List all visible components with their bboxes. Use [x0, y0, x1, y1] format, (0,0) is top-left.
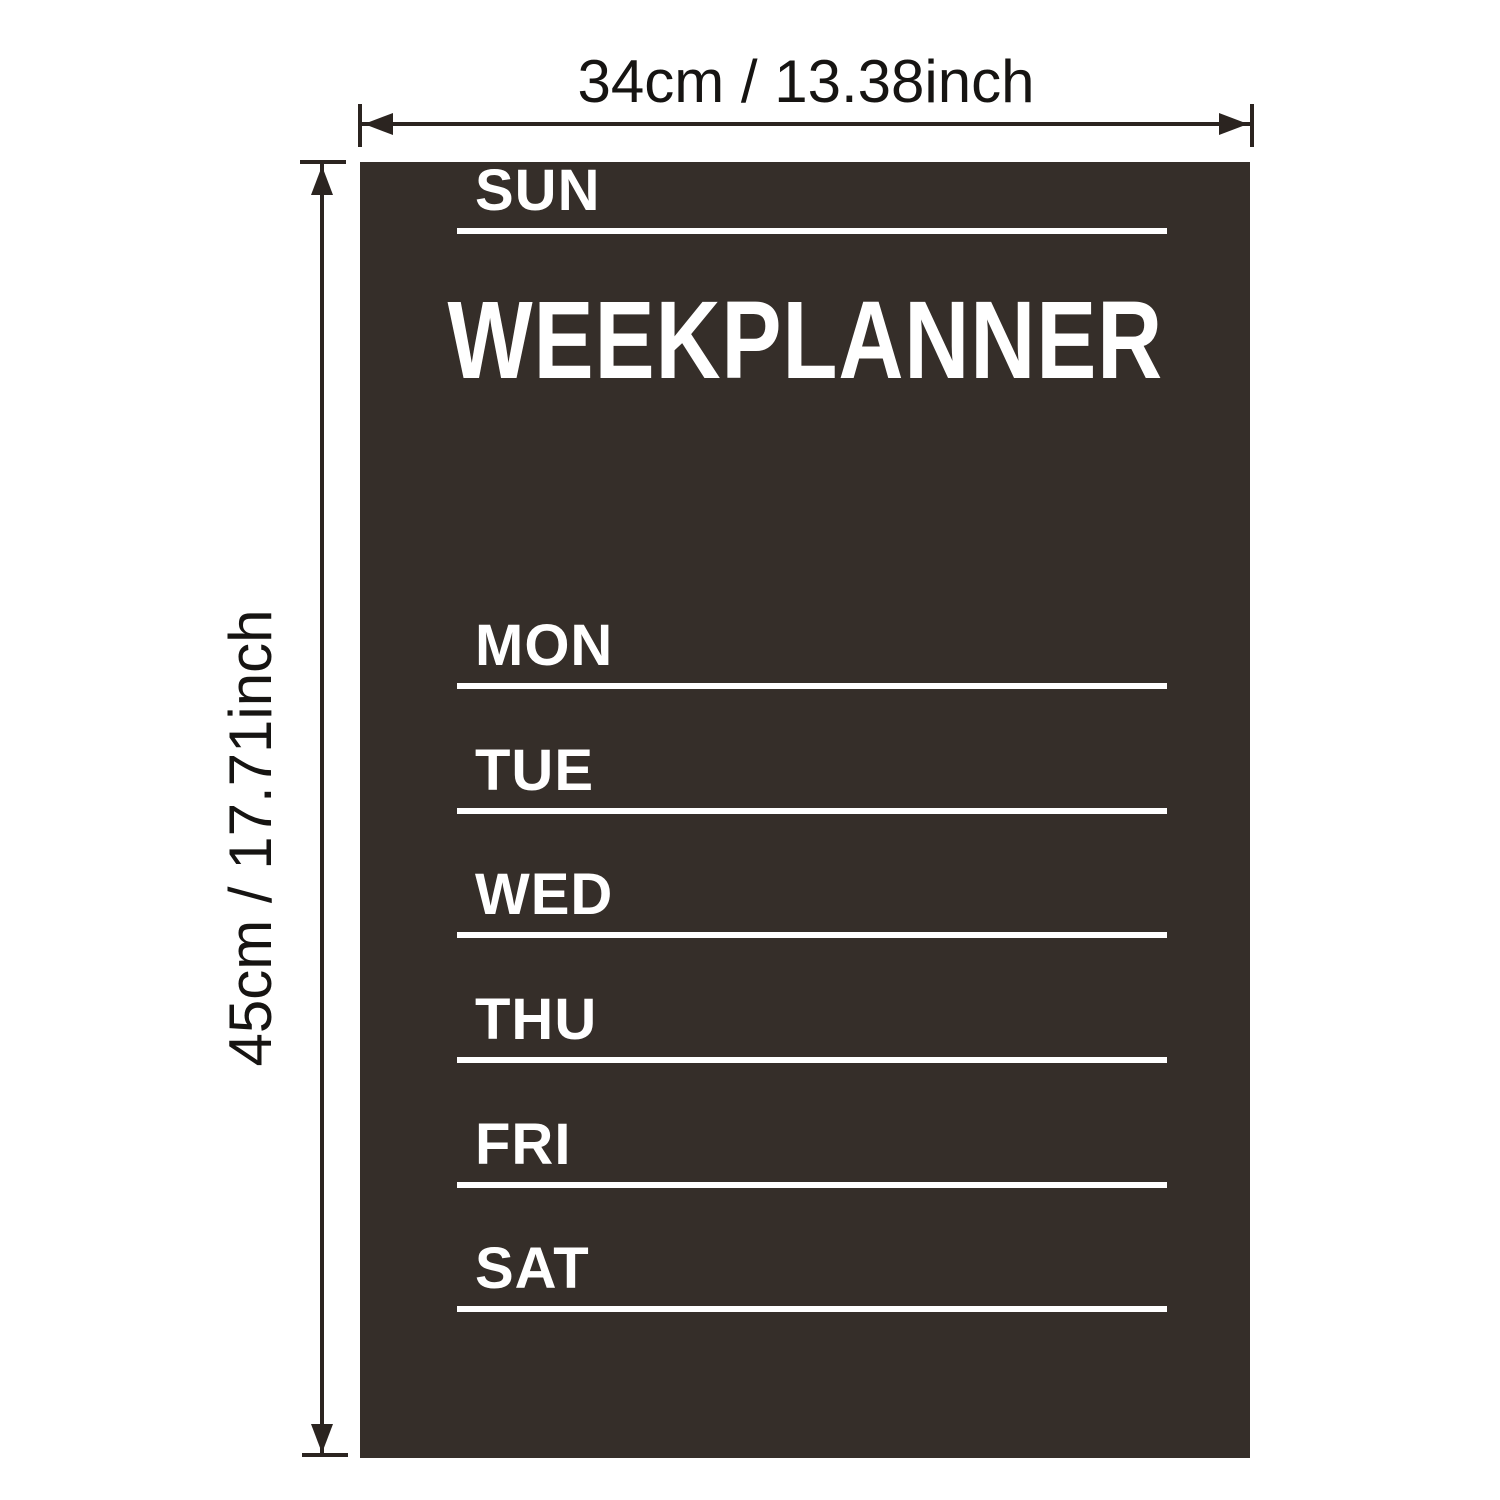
- width-dimension-label: 34cm / 13.38inch: [362, 52, 1250, 112]
- day-row-sun: SUN: [457, 162, 1167, 234]
- height-dimension-label: 45cm / 17.71inch: [221, 610, 281, 1067]
- day-label: MON: [475, 617, 1167, 675]
- day-row-fri: FRI: [457, 1116, 1167, 1188]
- height-dimension-bottom-tick: [302, 1453, 348, 1457]
- arrow-down-icon: [311, 1424, 333, 1453]
- day-writing-line: [457, 1057, 1167, 1063]
- height-dimension-top-tick: [300, 160, 346, 164]
- day-row-thu: THU: [457, 991, 1167, 1063]
- weekplanner-board: WEEKPLANNER MON TUE WED THU FRI SAT SUN: [360, 162, 1250, 1458]
- day-label: TUE: [475, 742, 1167, 800]
- arrow-right-icon: [1219, 113, 1248, 135]
- day-label: WED: [475, 866, 1167, 924]
- day-label: THU: [475, 991, 1167, 1049]
- day-writing-line: [457, 932, 1167, 938]
- day-label: SUN: [475, 162, 1167, 220]
- day-writing-line: [457, 1182, 1167, 1188]
- day-label: SAT: [475, 1240, 1167, 1298]
- board-title: WEEKPLANNER: [360, 286, 1250, 396]
- day-row-mon: MON: [457, 617, 1167, 689]
- day-row-sat: SAT: [457, 1240, 1167, 1312]
- day-writing-line: [457, 683, 1167, 689]
- height-dimension-line: [320, 164, 324, 1454]
- day-row-tue: TUE: [457, 742, 1167, 814]
- width-dimension-line: [362, 122, 1250, 126]
- arrow-up-icon: [311, 166, 333, 195]
- day-label: FRI: [475, 1116, 1167, 1174]
- day-writing-line: [457, 228, 1167, 234]
- day-writing-line: [457, 1306, 1167, 1312]
- product-dimension-diagram: 34cm / 13.38inch 45cm / 17.71inch WEEKPL…: [0, 0, 1500, 1500]
- day-row-wed: WED: [457, 866, 1167, 938]
- width-dimension-left-tick: [358, 104, 362, 147]
- day-writing-line: [457, 808, 1167, 814]
- arrow-left-icon: [364, 113, 393, 135]
- board-title-text: WEEKPLANNER: [447, 286, 1163, 396]
- width-dimension-right-tick: [1250, 104, 1254, 147]
